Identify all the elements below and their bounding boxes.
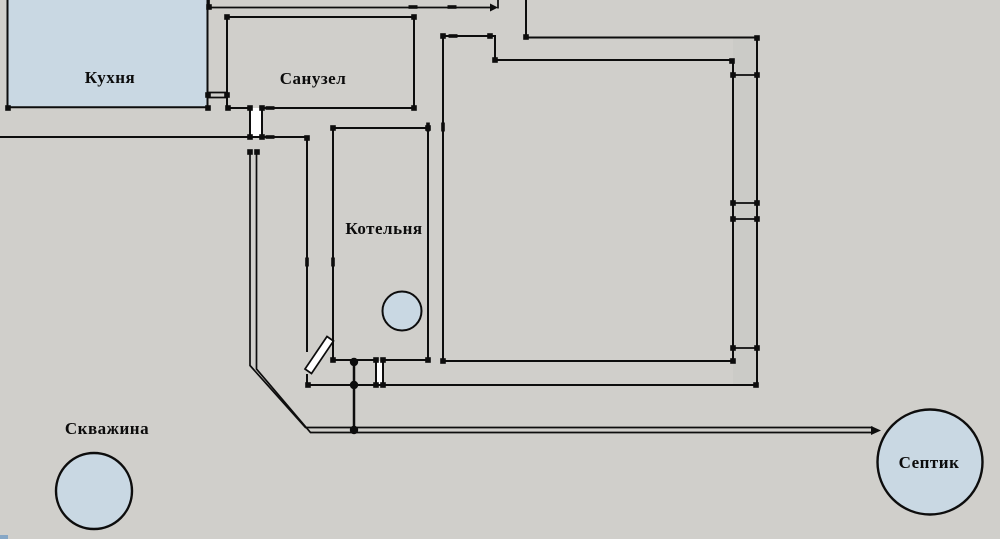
label-kitchen[interactable]: Кухня (85, 68, 135, 87)
boiler-tank-circle[interactable] (383, 292, 422, 331)
room-kitchen-fill[interactable] (8, 0, 207, 107)
room-main-walls[interactable] (443, 36, 733, 361)
label-boiler-room[interactable]: Котельня (345, 219, 422, 238)
well-circle[interactable] (56, 453, 132, 529)
pipe-septic-arrow-icon (871, 426, 881, 435)
bottom-left-accent (0, 535, 8, 539)
label-septic[interactable]: Септик (899, 453, 960, 472)
door-opening-hall[interactable] (250, 108, 262, 137)
drawing-canvas: Кухня Санузел Котельня Скважина Септик (0, 0, 1000, 539)
passage-boiler-bottom[interactable] (376, 360, 383, 385)
door-leaf-boiler[interactable] (305, 337, 334, 374)
wall-connector-kitchen-bathroom[interactable] (208, 93, 227, 98)
pipe-sewer-main[interactable] (250, 152, 881, 435)
room-kitchen[interactable] (8, 0, 208, 108)
room-bathroom[interactable] (227, 17, 414, 108)
label-well[interactable]: Скважина (65, 419, 149, 438)
pipe-top-arrow-icon (490, 4, 498, 12)
label-bathroom[interactable]: Санузел (280, 69, 347, 88)
wall-cavity-right (733, 38, 757, 385)
wall-exterior-outline[interactable] (308, 0, 758, 385)
